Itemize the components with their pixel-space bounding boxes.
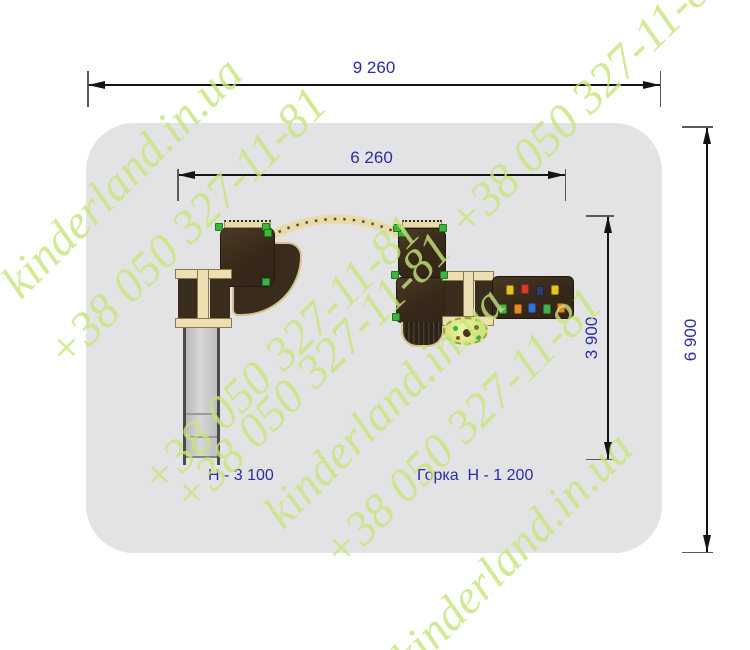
arrowhead-up — [604, 216, 612, 233]
arrowhead-down — [604, 442, 612, 459]
arrowhead-left — [88, 81, 105, 89]
left-gable-right-panel — [210, 279, 230, 318]
climbing-hold — [528, 303, 536, 313]
right-tower-railing — [402, 220, 442, 228]
dimension-line — [607, 216, 609, 459]
climbing-hold — [536, 286, 544, 296]
corner-post — [440, 271, 448, 279]
extension-tick — [87, 71, 89, 107]
dimension-line — [88, 84, 660, 86]
flower-dot — [456, 336, 460, 340]
climbing-hold — [514, 304, 522, 314]
dimension-value: 6 260 — [350, 148, 393, 168]
corner-post — [391, 271, 399, 279]
flower-dot — [476, 335, 481, 340]
slide-end-edge — [186, 456, 217, 458]
right-gable-left-panel — [445, 281, 463, 316]
right-gable-right-panel — [475, 281, 493, 316]
arrowhead-right — [643, 81, 660, 89]
climbing-hold — [506, 285, 514, 295]
arrowhead-down — [703, 535, 711, 552]
corner-post — [439, 224, 447, 232]
arrowhead-left — [178, 171, 195, 179]
flower-dot — [463, 329, 471, 337]
extension-tick — [660, 71, 662, 107]
arrowhead-right — [548, 171, 565, 179]
bridge-deck — [270, 219, 404, 236]
flower-dot — [453, 326, 458, 331]
site-area — [86, 123, 662, 553]
dimension-line — [178, 174, 565, 176]
slide-seam-1 — [186, 413, 217, 415]
dimension-value: 3 900 — [582, 316, 602, 359]
left-gable-bottom-beam — [175, 318, 232, 328]
left-gable-left-panel — [178, 279, 197, 318]
corner-post — [264, 229, 272, 237]
playground-plan-drawing: 9 260 6 260 6 900 3 900 Н - 3 100 Горка … — [0, 0, 750, 650]
climbing-hold — [543, 304, 551, 314]
right-slide-exit — [401, 322, 444, 347]
tower-height-label: Н - 3 100 — [208, 467, 274, 485]
slide-seam-2 — [186, 436, 217, 438]
arrowhead-up — [703, 127, 711, 144]
climbing-hold — [551, 285, 559, 295]
slide-bed — [186, 328, 217, 458]
right-tower-platform — [396, 277, 447, 323]
corner-post — [215, 223, 223, 231]
bridge-arc — [258, 196, 413, 246]
dimension-value: 6 900 — [681, 318, 701, 361]
corner-post — [262, 278, 270, 286]
climbing-wall — [492, 276, 574, 319]
dimension-line — [706, 127, 708, 552]
climbing-hold — [521, 284, 529, 294]
corner-post — [392, 313, 400, 321]
flower-dot — [474, 325, 479, 330]
corner-post — [393, 224, 401, 232]
slide-rail-right — [217, 328, 220, 465]
climbing-hold — [499, 304, 507, 314]
climbing-hold — [557, 303, 565, 313]
slide-height-label: Горка Н - 1 200 — [417, 467, 533, 485]
flower-climb-element — [443, 317, 488, 345]
dimension-value: 9 260 — [353, 58, 396, 78]
